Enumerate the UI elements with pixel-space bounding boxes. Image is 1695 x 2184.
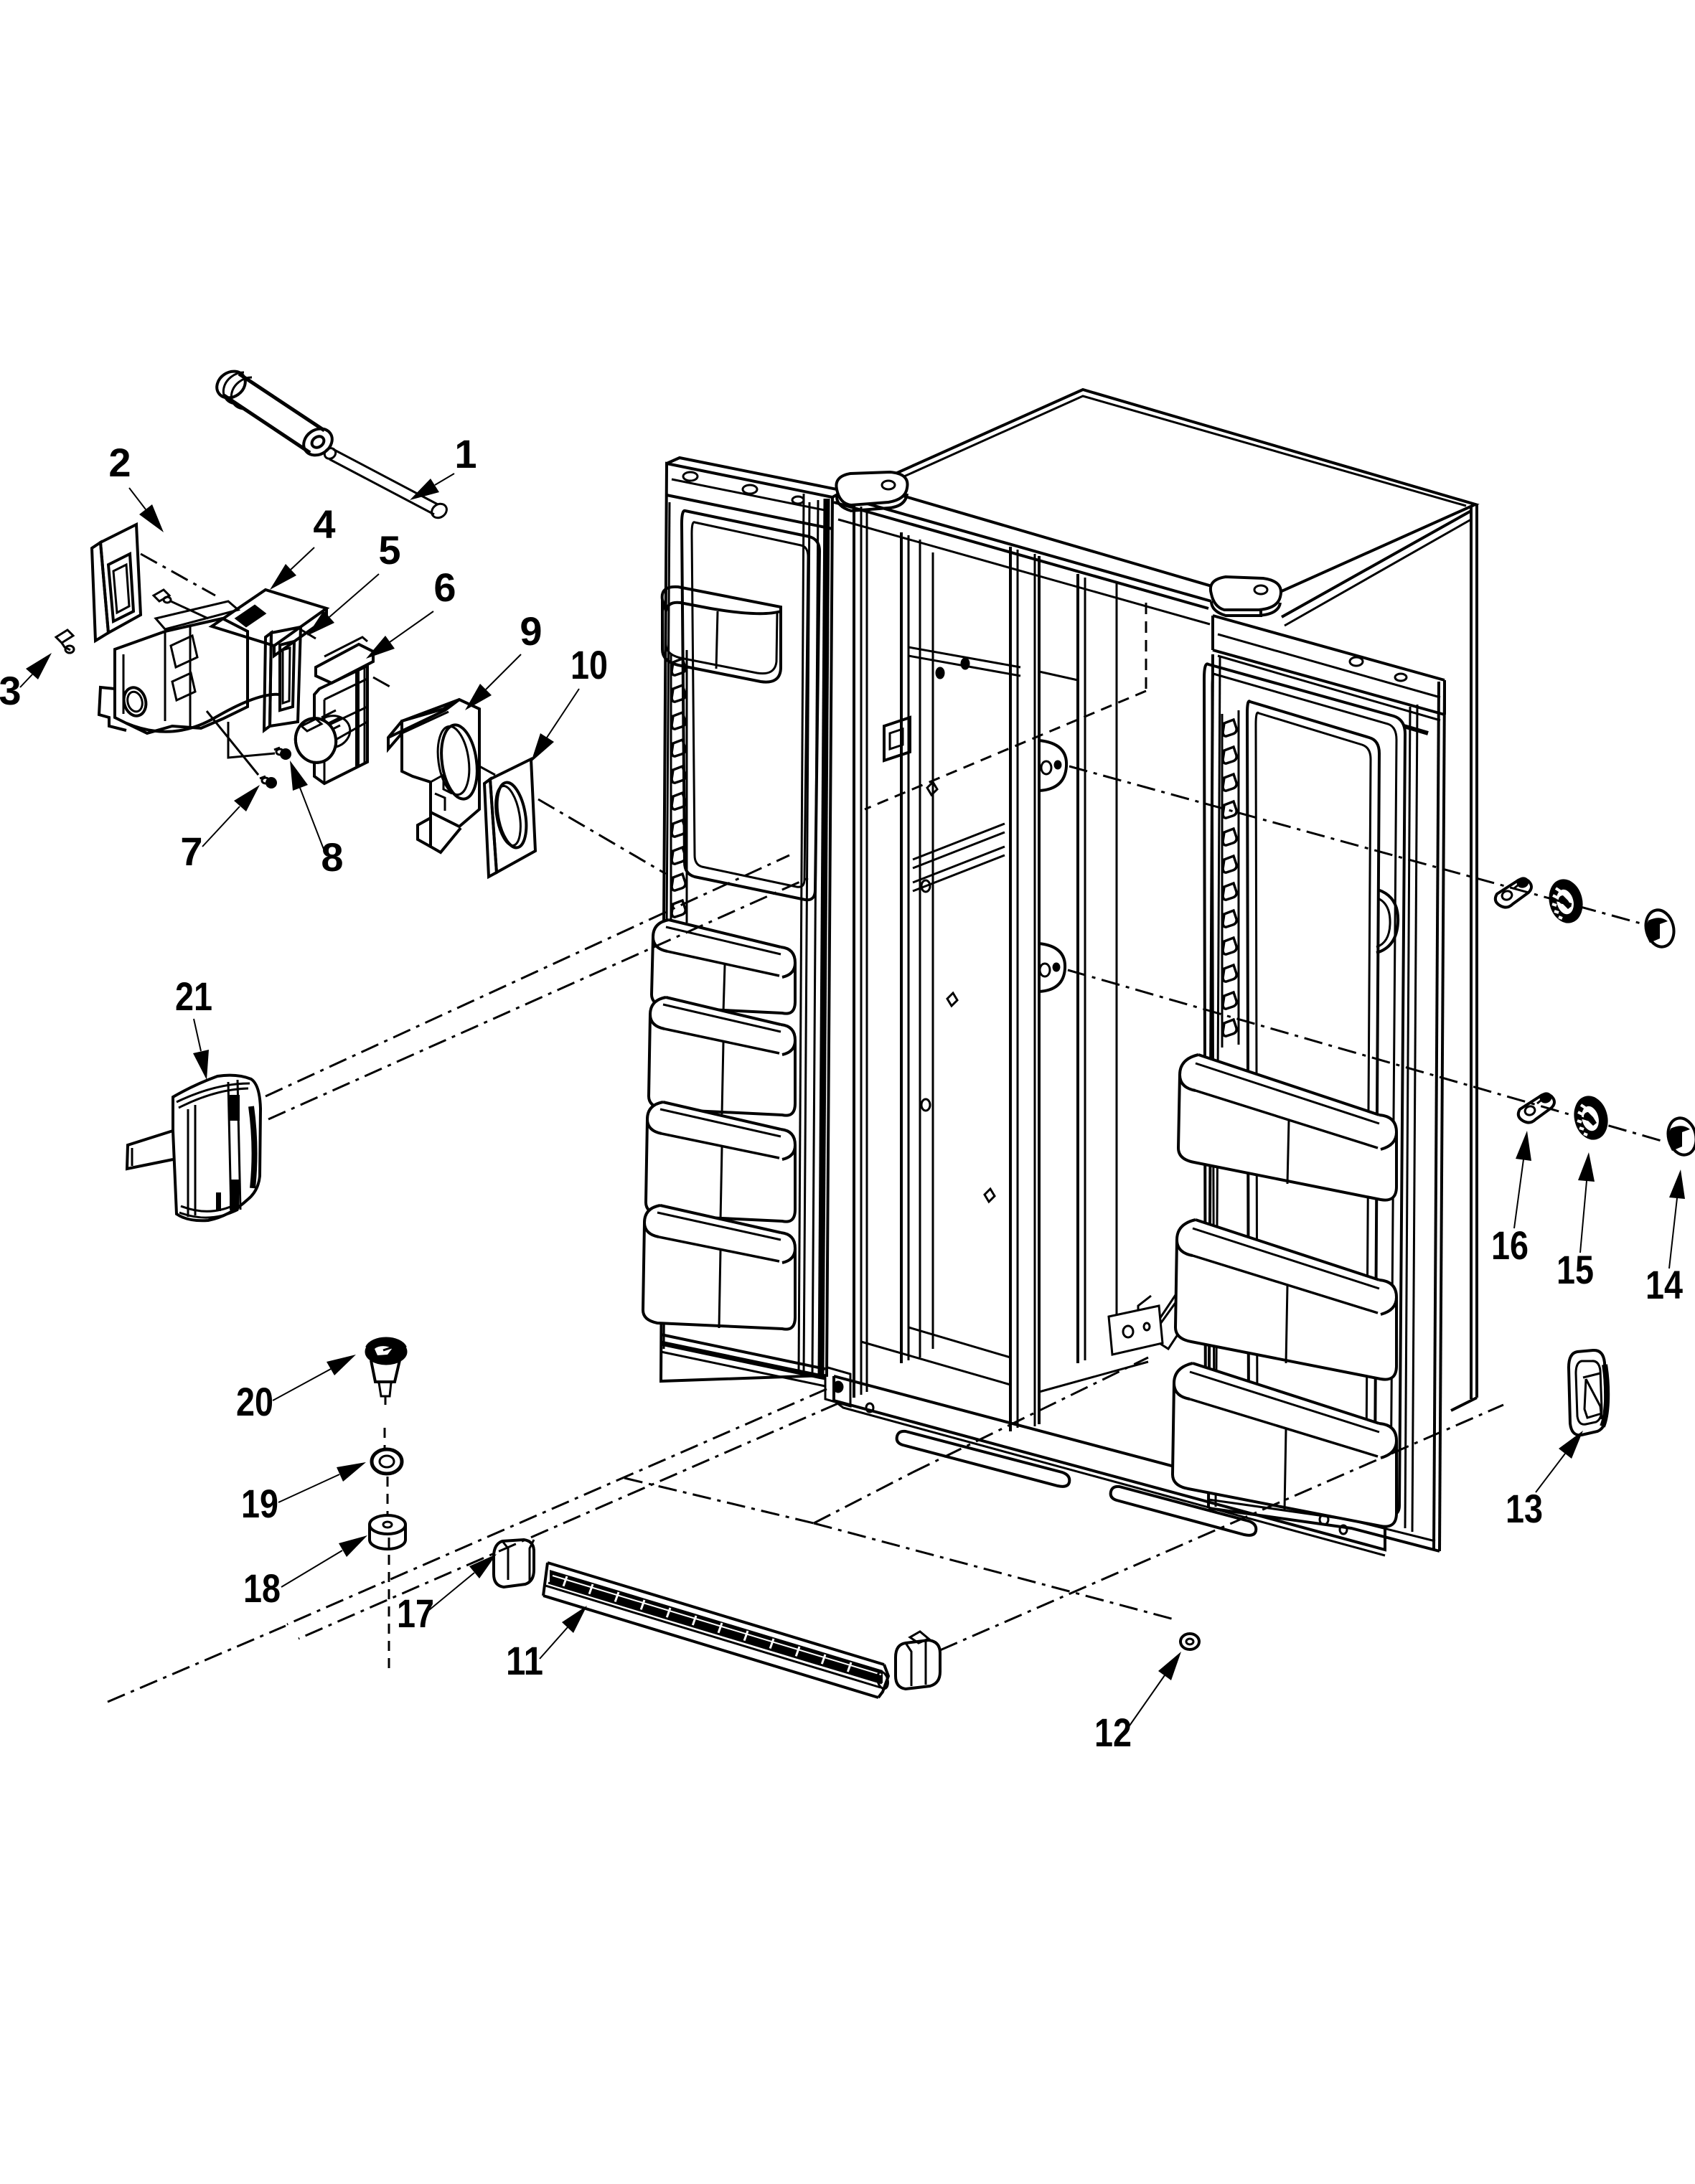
svg-text:16: 16 bbox=[1491, 1223, 1529, 1268]
svg-text:11: 11 bbox=[506, 1638, 543, 1683]
svg-text:4: 4 bbox=[313, 502, 335, 547]
svg-text:17: 17 bbox=[397, 1591, 434, 1636]
svg-text:10: 10 bbox=[571, 642, 608, 687]
svg-text:6: 6 bbox=[433, 565, 456, 610]
svg-text:1: 1 bbox=[454, 431, 476, 476]
svg-text:9: 9 bbox=[520, 608, 542, 654]
svg-text:8: 8 bbox=[321, 834, 343, 880]
svg-text:12: 12 bbox=[1094, 1710, 1132, 1755]
svg-text:5: 5 bbox=[378, 527, 400, 573]
svg-text:20: 20 bbox=[236, 1379, 273, 1424]
svg-text:19: 19 bbox=[241, 1481, 278, 1526]
svg-text:7: 7 bbox=[180, 829, 202, 874]
svg-text:3: 3 bbox=[0, 668, 22, 713]
svg-text:15: 15 bbox=[1557, 1247, 1594, 1292]
svg-text:18: 18 bbox=[243, 1566, 281, 1611]
svg-text:13: 13 bbox=[1506, 1486, 1543, 1531]
svg-text:14: 14 bbox=[1645, 1262, 1683, 1307]
svg-text:2: 2 bbox=[108, 440, 131, 485]
svg-text:21: 21 bbox=[175, 974, 212, 1019]
